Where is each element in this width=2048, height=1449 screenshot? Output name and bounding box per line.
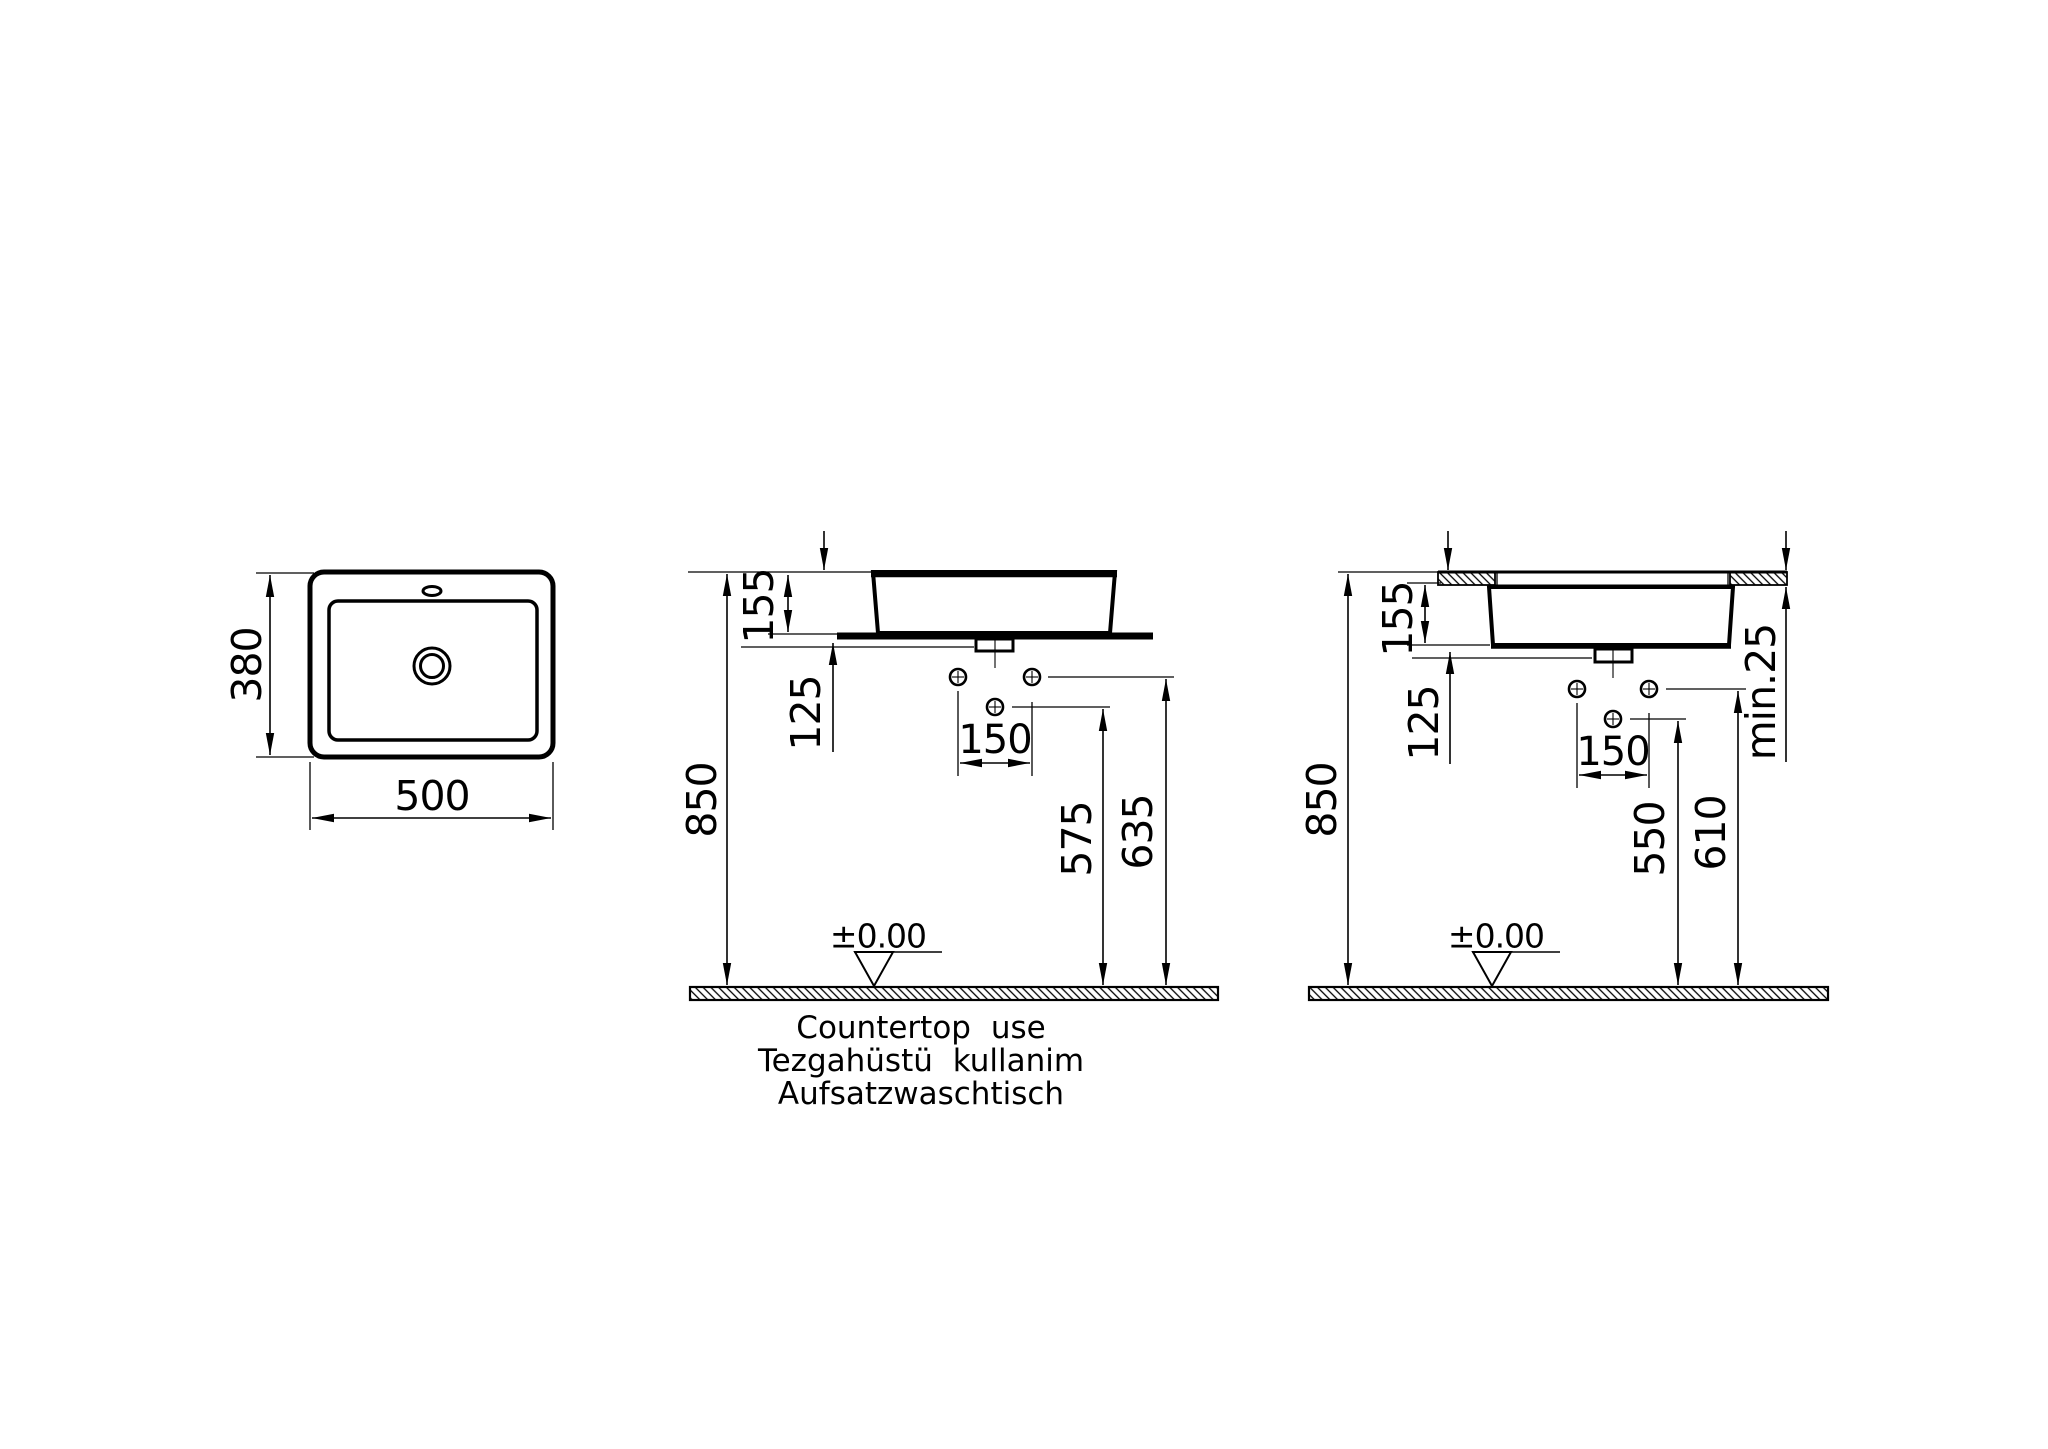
dim-basin-height-label: 155 bbox=[1374, 581, 1422, 656]
floor-datum-label: ±0.00 bbox=[830, 917, 926, 956]
dim-min-countertop-label: min.25 bbox=[1737, 624, 1785, 761]
floor-line bbox=[690, 987, 1218, 1000]
dim-total-height-label: 850 bbox=[678, 762, 726, 837]
dim-supply-height-label: 635 bbox=[1114, 794, 1162, 869]
caption-turkish: Tezgahüstü kullanim bbox=[757, 1043, 1084, 1079]
technical-drawing: 380 500 850 bbox=[0, 0, 2048, 1449]
floor-datum-label: ±0.00 bbox=[1448, 917, 1544, 956]
dim-drain-height-label: 550 bbox=[1626, 801, 1674, 876]
countertop-hatch-right bbox=[1730, 572, 1787, 585]
basin-profile bbox=[1489, 587, 1733, 645]
dim-hole-spacing-label: 150 bbox=[1576, 729, 1649, 775]
dim-below-basin-label: 125 bbox=[1400, 685, 1448, 760]
dim-basin-height-label: 155 bbox=[735, 568, 783, 643]
dim-drain-height-label: 575 bbox=[1053, 801, 1101, 876]
caption-english: Countertop use bbox=[796, 1010, 1045, 1046]
caption-block: Countertop use Tezgahüstü kullanim Aufsa… bbox=[757, 1010, 1084, 1112]
dim-hole-spacing-label: 150 bbox=[958, 717, 1031, 763]
overflow-slot-icon bbox=[423, 587, 441, 596]
drawing-sheet: 380 500 850 bbox=[0, 0, 2048, 1449]
dim-below-countertop-label: 125 bbox=[782, 675, 830, 750]
dim-depth-label: 380 bbox=[223, 627, 271, 702]
dim-total-height-label: 850 bbox=[1298, 762, 1346, 837]
caption-german: Aufsatzwaschtisch bbox=[778, 1076, 1064, 1112]
floor-line bbox=[1309, 987, 1828, 1000]
dim-width-label: 500 bbox=[394, 772, 469, 820]
dim-supply-height-label: 610 bbox=[1687, 795, 1735, 870]
drain-hole-inner bbox=[421, 655, 444, 678]
basin-profile bbox=[873, 572, 1115, 633]
countertop-hatch-left bbox=[1438, 572, 1495, 585]
